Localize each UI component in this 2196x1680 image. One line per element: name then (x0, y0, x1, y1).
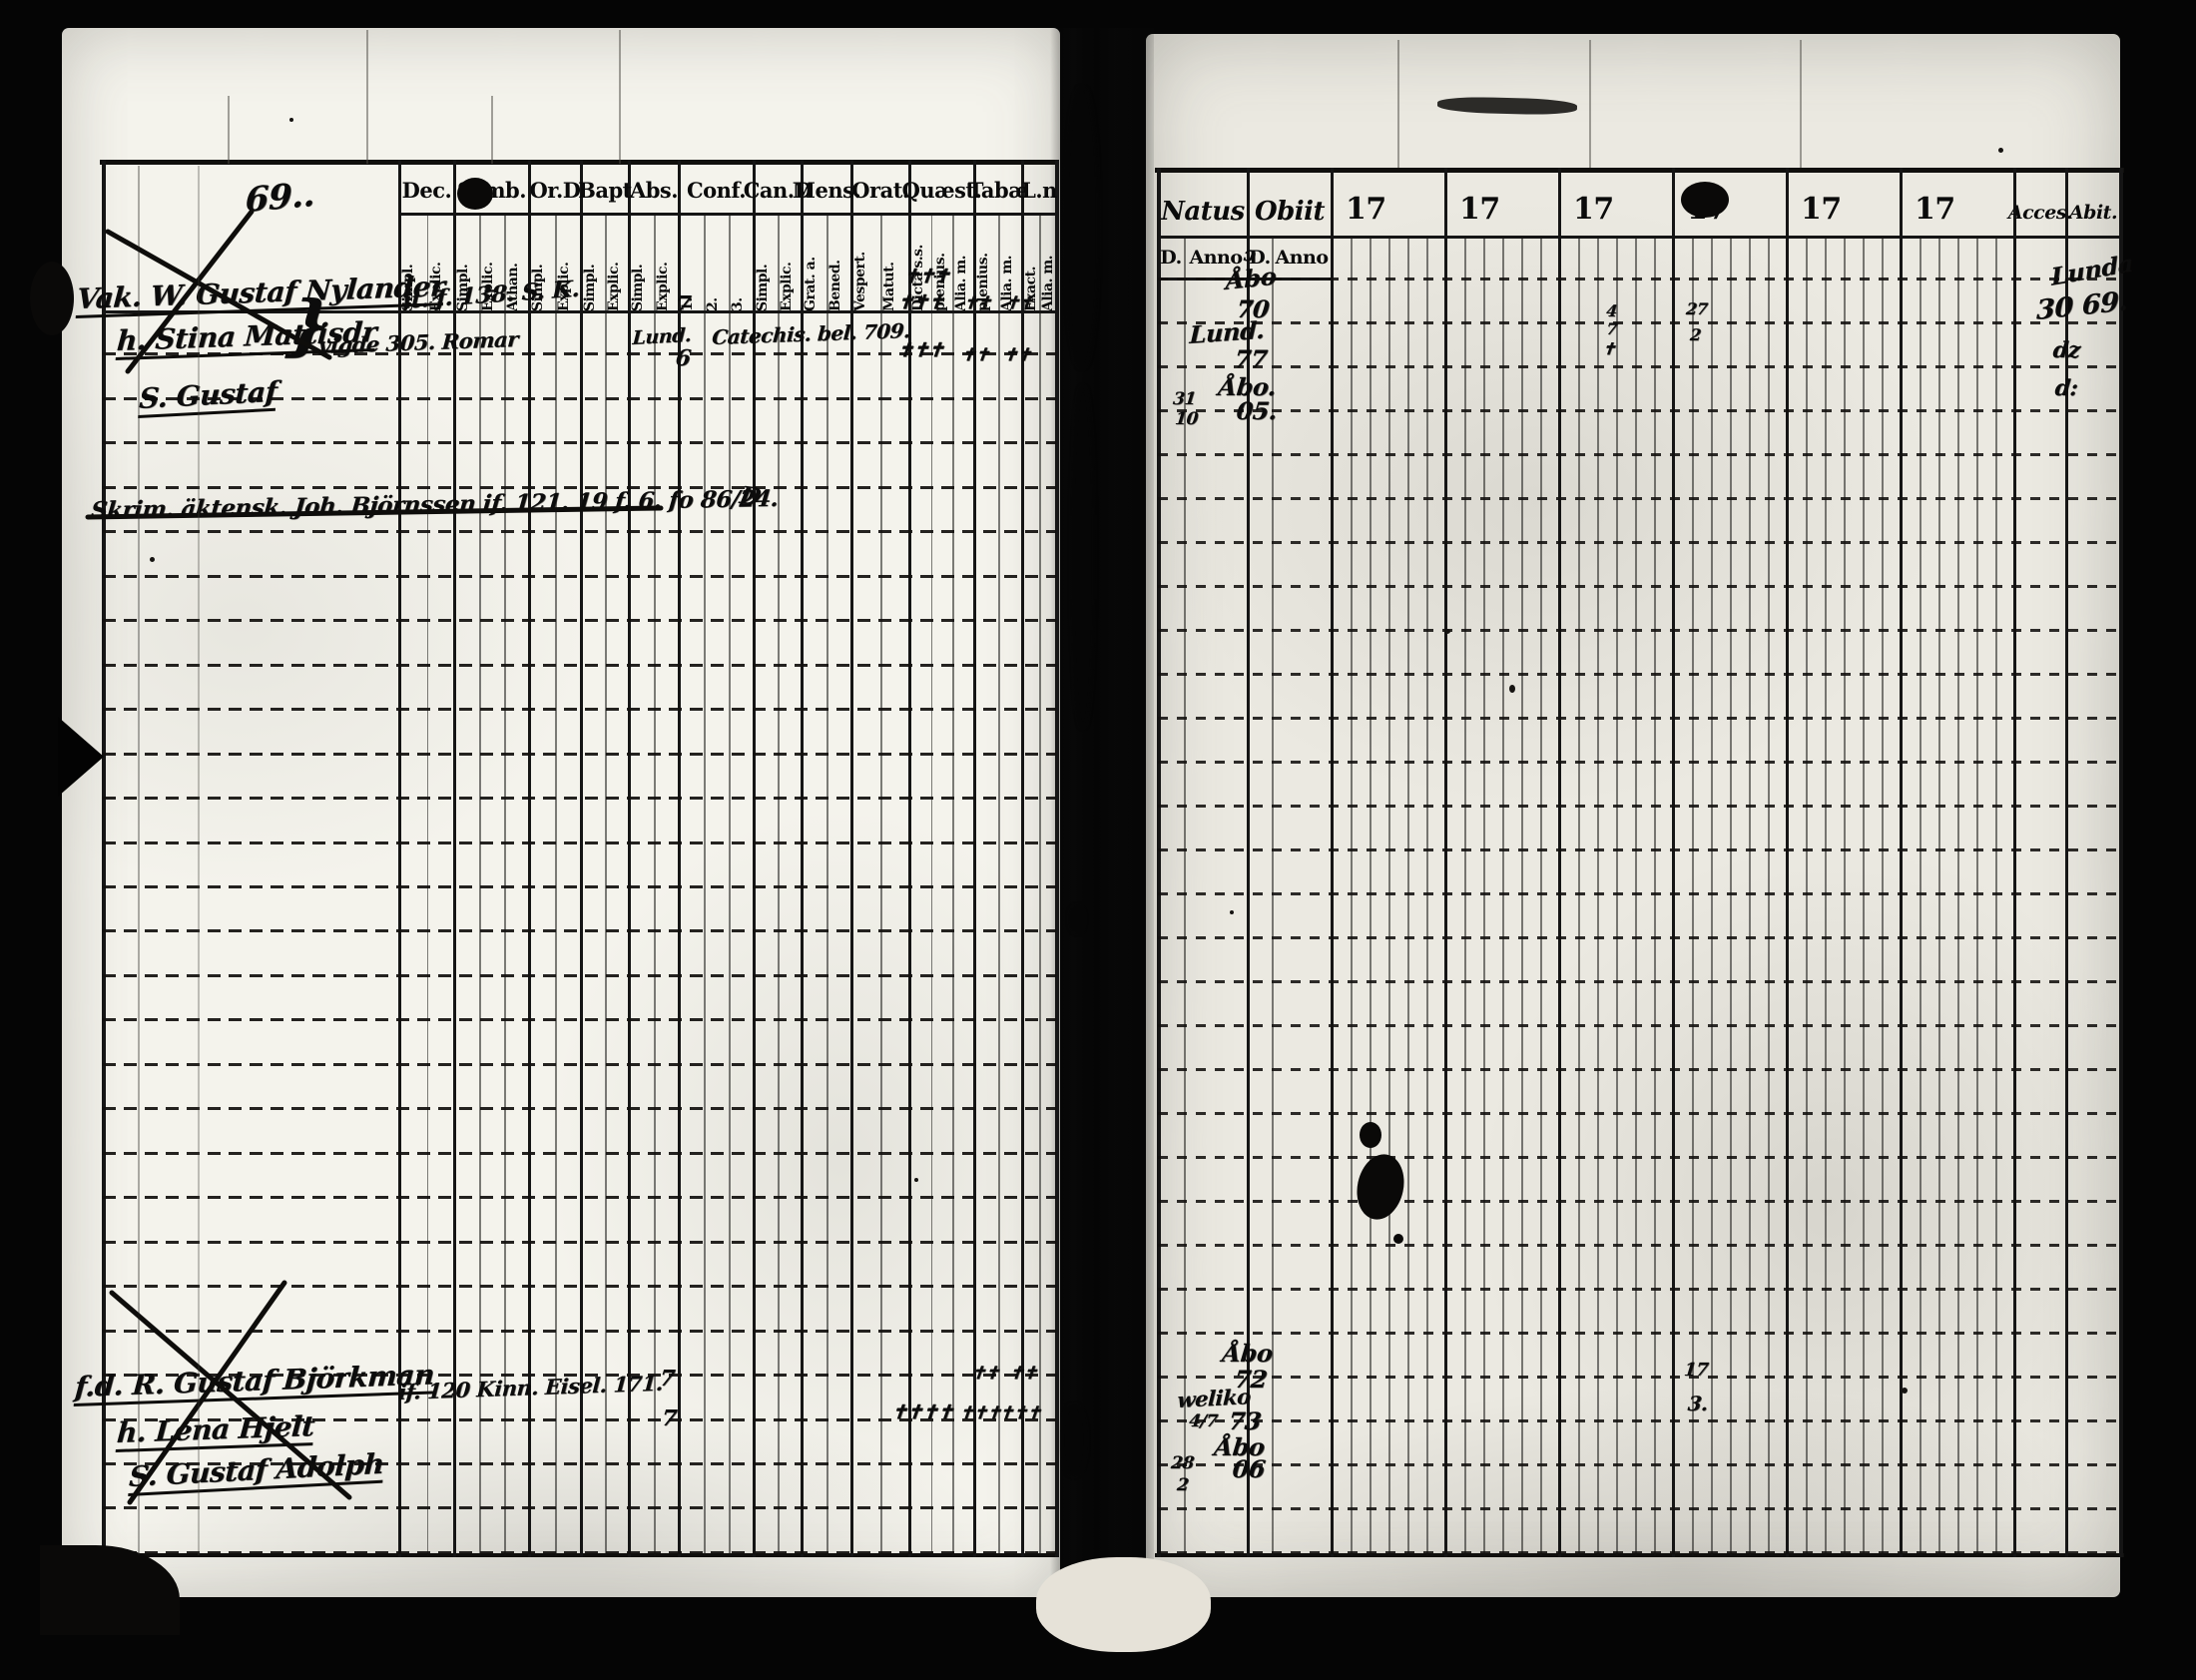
cross-marks: ✝✝ (962, 295, 991, 312)
year-subcolumn-line (1464, 236, 1466, 1555)
entry-name: S. Gustaf Adolph (128, 1450, 384, 1496)
right-row-line (1158, 541, 2120, 544)
natus-year: 77 (1233, 347, 1268, 371)
column-header-ord: Or.D (529, 168, 581, 212)
acces-header: Acces. (2014, 194, 2066, 232)
left-row-line (103, 575, 1056, 578)
left-row-line (103, 1241, 1056, 1244)
column-subheader: Grat. a. (804, 218, 826, 311)
column-subheader: Simpl. (756, 218, 778, 311)
left-subcolumn-line (479, 213, 481, 1555)
right-row-line (1158, 1288, 2120, 1291)
natus-header: Natus (1158, 190, 1248, 234)
left-row-line (103, 708, 1056, 711)
right-table-vline (1331, 168, 1334, 1557)
entry-note: if. 120 Kinn. Eisel. 171. (398, 1373, 664, 1402)
natus-place: Åbo (1226, 265, 1276, 293)
page-crease (491, 96, 493, 164)
left-row-line (103, 1018, 1056, 1021)
left-row-line (103, 841, 1056, 844)
year-subcolumn-line (1730, 236, 1732, 1555)
right-row-line (1158, 936, 2120, 939)
year-subcolumn-line (1938, 236, 1940, 1555)
column-subheader: Simpl. (583, 218, 605, 311)
right-row-line (1158, 805, 2120, 808)
right-table-vline (1900, 168, 1903, 1557)
abit-note: dz (2052, 339, 2081, 361)
obiit-anno-header: Anno (1272, 240, 1332, 276)
year-subcolumn-line (1597, 236, 1599, 1555)
page-crease (1397, 40, 1399, 168)
left-subcolumn-line (998, 213, 1000, 1555)
page-crease (619, 30, 621, 164)
speck (1902, 1388, 1908, 1394)
page-curl (1036, 1557, 1211, 1652)
right-row-line (1158, 673, 2120, 676)
date-mark: 27 (1685, 301, 1708, 317)
cross-marks: ✝✝ (1002, 347, 1031, 364)
column-header-bapt: Bapt (581, 168, 629, 212)
right-row-line (1158, 980, 2120, 983)
year-subcolumn-line (1711, 236, 1713, 1555)
column-header-qust: Quæst. (909, 168, 974, 212)
left-subcolumn-line (605, 213, 607, 1555)
left-table-vline (580, 160, 583, 1557)
entry-note: vigde 305. Romar (318, 328, 519, 356)
natus-day-line (1184, 236, 1186, 1555)
year-subcolumn-line (1521, 236, 1523, 1555)
left-subcolumn-line (880, 213, 882, 1555)
natus-day: 2 (1176, 1477, 1189, 1494)
left-row-line (103, 797, 1056, 800)
left-subcolumn-line (826, 213, 828, 1555)
cross-marks: ✝✝ (960, 347, 989, 364)
date-mark: 3. (1687, 1394, 1709, 1413)
year-subcolumn-line (1388, 236, 1390, 1555)
ink-blot (1393, 1234, 1403, 1244)
conf-mark: 6 (675, 347, 692, 369)
year-subcolumn-line (1882, 236, 1884, 1555)
right-table-vline (1558, 168, 1561, 1557)
left-table-vline (753, 160, 756, 1557)
ink-blot (1360, 1122, 1381, 1148)
year-subcolumn-line (1483, 236, 1485, 1555)
year-subcolumn-line (1749, 236, 1751, 1555)
year-subcolumn-line (1370, 236, 1372, 1555)
right-row-line (1158, 585, 2120, 588)
cross-mark: ✝ (1601, 341, 1616, 357)
right-row-line (1158, 717, 2120, 720)
year-subcolumn-line (1768, 236, 1770, 1555)
year-subcolumn-line (1426, 236, 1428, 1555)
abit-header: Abit. (2066, 194, 2120, 232)
left-subcolumn-line (504, 213, 506, 1555)
year-subcolumn-line (1806, 236, 1808, 1555)
entry-name: h. Lena Hjelt (116, 1412, 315, 1452)
natus-year: 73 (1227, 1409, 1262, 1433)
right-table-vline (1786, 168, 1789, 1557)
right-row-line (1158, 409, 2120, 412)
right-row-line (1158, 1112, 2120, 1115)
column-subheader: Alia. m. (1041, 218, 1056, 311)
cross-marks: ✝✝✝ (896, 341, 944, 360)
cross-marks: ✝✝✝ (902, 268, 950, 286)
column-subheader: Explic. (780, 218, 802, 311)
film-edge-blob (30, 262, 74, 335)
natus-day: 4/7 (1188, 1413, 1218, 1430)
year-header: 17 (1801, 188, 1855, 230)
stray-mark: ɔ (1243, 244, 1257, 264)
entry-note: Catechis. bel. 709. (712, 320, 911, 347)
left-row-line (103, 441, 1056, 444)
conf-mark: 7 (659, 1368, 676, 1390)
left-row-line (103, 885, 1056, 888)
right-row-line (1158, 761, 2120, 764)
natus-place: Åbo (1221, 1342, 1273, 1366)
left-subcolumn-line (654, 213, 656, 1555)
year-subcolumn-line (1635, 236, 1637, 1555)
year-header: 17 (1459, 188, 1513, 230)
natus-year: 05. (1235, 399, 1278, 423)
left-row-line (103, 664, 1056, 667)
right-row-line (1158, 1244, 2120, 1247)
year-subcolumn-line (1692, 236, 1694, 1555)
right-row-line (1158, 848, 2120, 851)
left-row-line (103, 753, 1056, 756)
left-row-line (103, 1107, 1056, 1110)
left-table-vline (628, 160, 631, 1557)
left-table-vline (453, 160, 456, 1557)
right-row-line (1158, 629, 2120, 632)
column-header-dec: Dec. (399, 168, 454, 212)
left-table-vline (850, 160, 853, 1557)
year-subcolumn-line (1863, 236, 1865, 1555)
right-table-vline (2013, 168, 2016, 1557)
year-subcolumn-line (1920, 236, 1921, 1555)
left-table-vline (102, 160, 106, 1557)
year-subcolumn-line (1502, 236, 1504, 1555)
left-table-vline (528, 160, 531, 1557)
left-table-vline (973, 160, 976, 1557)
year-subcolumn-line (1540, 236, 1542, 1555)
ink-blot (1681, 182, 1729, 218)
left-subcolumn-line (778, 213, 780, 1555)
table-overlay: Dec.Simpl.Explic.Symb.Simpl.Explic.Athan… (0, 0, 2196, 1680)
left-table-vline (398, 160, 401, 1557)
speck (1998, 148, 2003, 153)
left-subcolumn-line (729, 213, 731, 1555)
date-mark: 7 (1605, 321, 1617, 337)
column-subheader: Simpl. (631, 218, 654, 311)
left-row-line (103, 530, 1056, 533)
left-row-line (103, 619, 1056, 622)
right-row-line (1158, 1507, 2120, 1510)
microfilm-scan: Dec.Simpl.Explic.Symb.Simpl.Explic.Athan… (0, 0, 2196, 1680)
left-subcolumn-line (555, 213, 557, 1555)
speck (1444, 629, 1450, 634)
struck-note: Skrim. äktensk. Joh. Björnssen if. 121. … (90, 487, 779, 522)
right-row-line (1158, 1419, 2120, 1422)
column-subheader: 2. (706, 218, 729, 311)
right-row-line (1158, 497, 2120, 500)
date-mark: 2 (1689, 327, 1701, 343)
abit-note: 30 69. (2036, 287, 2127, 323)
column-subheader: Bened. (828, 218, 851, 311)
right-table-vline (1444, 168, 1447, 1557)
right-table-vline (1157, 168, 1161, 1557)
date-mark: 17 (1683, 1362, 1709, 1380)
cross-marks: ✝✝✝✝ (890, 1403, 954, 1422)
year-subcolumn-line (1616, 236, 1618, 1555)
speck (150, 557, 155, 562)
obiit-header: Obiit (1248, 190, 1332, 234)
cross-marks: ✝✝ (1008, 1366, 1037, 1383)
left-subcolumn-line (1039, 213, 1041, 1555)
year-subcolumn-line (1351, 236, 1353, 1555)
year-subcolumn-line (1844, 236, 1846, 1555)
date-mark: 4 (1605, 303, 1617, 319)
right-row-line (1158, 1463, 2120, 1466)
year-subcolumn-line (1957, 236, 1959, 1555)
right-row-line (1158, 1200, 2120, 1203)
page-crease (228, 96, 230, 164)
year-subcolumn-line (1976, 236, 1978, 1555)
right-row-line (1158, 1024, 2120, 1027)
conf-mark: 7 (675, 293, 692, 315)
left-subcolumn-line (704, 213, 706, 1555)
cross-marks: ✝✝✝ (958, 1405, 1001, 1422)
left-row-line (103, 1506, 1056, 1509)
left-subcolumn-line (952, 213, 954, 1555)
left-row-line (103, 974, 1056, 977)
page-crease (1800, 40, 1802, 168)
abit-note: d: (2054, 377, 2079, 399)
entry-name: S. Gustaf (138, 378, 277, 418)
right-table-vline (2119, 168, 2123, 1557)
speck (1230, 910, 1234, 914)
year-subcolumn-line (1407, 236, 1409, 1555)
cross-marks: ✝✝✝ (896, 293, 944, 312)
left-row-line (103, 1063, 1056, 1066)
cross-marks: ✝✝✝ (998, 1405, 1041, 1422)
column-subheader: Vespert. (853, 218, 880, 311)
left-subcolumn-line (931, 213, 933, 1555)
left-row-line (103, 1551, 1056, 1554)
year-subcolumn-line (1578, 236, 1580, 1555)
column-header-mens: Mens. (802, 168, 851, 212)
ink-blot (457, 178, 493, 210)
year-subcolumn-line (1995, 236, 1997, 1555)
right-row-line (1158, 1068, 2120, 1071)
left-table-vline (1021, 160, 1024, 1557)
natus-day: 31 (1172, 391, 1196, 408)
right-table-vline (1672, 168, 1675, 1557)
right-row-line (1158, 892, 2120, 895)
speck (289, 118, 293, 122)
column-header-ln: L.n (1022, 168, 1056, 212)
column-subheader: 3. (731, 218, 754, 311)
left-row-line (103, 1285, 1056, 1288)
natus-day: 10 (1174, 411, 1198, 428)
natus-year: 06 (1231, 1457, 1266, 1481)
column-header-orat: Orat. (851, 168, 909, 212)
left-row-line (103, 1152, 1056, 1155)
left-row-line (103, 929, 1056, 932)
left-table-vline (908, 160, 911, 1557)
right-table-top-border (1155, 168, 2124, 173)
entry-name: f.d. R. Gustaf Björkman (74, 1361, 435, 1406)
left-row-line (103, 1196, 1056, 1199)
column-subheader: Explic. (607, 218, 629, 311)
right-row-line (1158, 453, 2120, 456)
page-crease (138, 166, 140, 1555)
cross-marks: ✝✝ (1004, 295, 1033, 312)
right-row-line (1158, 278, 2120, 280)
left-table-vline (1055, 160, 1059, 1557)
page-crease (366, 30, 368, 164)
left-table-vline (801, 160, 804, 1557)
year-header: 17 (1573, 188, 1627, 230)
year-subcolumn-line (1825, 236, 1827, 1555)
page-number: 69.. (245, 178, 314, 218)
natus-day-header: D. (1158, 240, 1184, 276)
column-header-tab: Tabæ (974, 168, 1022, 212)
film-edge-notch (58, 717, 104, 797)
left-header-separator (399, 213, 1056, 216)
left-subcolumn-line (427, 213, 429, 1555)
year-header: 17 (1346, 188, 1399, 230)
column-header-abs: Abs. (629, 168, 679, 212)
right-row-line (1158, 365, 2120, 368)
speck (914, 1178, 918, 1182)
year-header: 17 (1915, 188, 1968, 230)
page-crease (198, 166, 200, 1555)
year-subcolumn-line (1654, 236, 1656, 1555)
speck (1509, 685, 1515, 693)
right-row-line (1158, 1551, 2120, 1554)
right-row-line (1158, 1376, 2120, 1379)
natus-day: 28 (1170, 1455, 1194, 1472)
cross-marks: ✝✝ (970, 1366, 999, 1383)
natus-place: Lund. (1189, 318, 1265, 347)
conf-mark: 7 (661, 1407, 678, 1429)
right-row-line (1158, 1332, 2120, 1335)
left-row-line (103, 1330, 1056, 1333)
page-crease (1589, 40, 1591, 168)
right-row-line (1158, 321, 2120, 324)
right-row-line (1158, 1156, 2120, 1159)
